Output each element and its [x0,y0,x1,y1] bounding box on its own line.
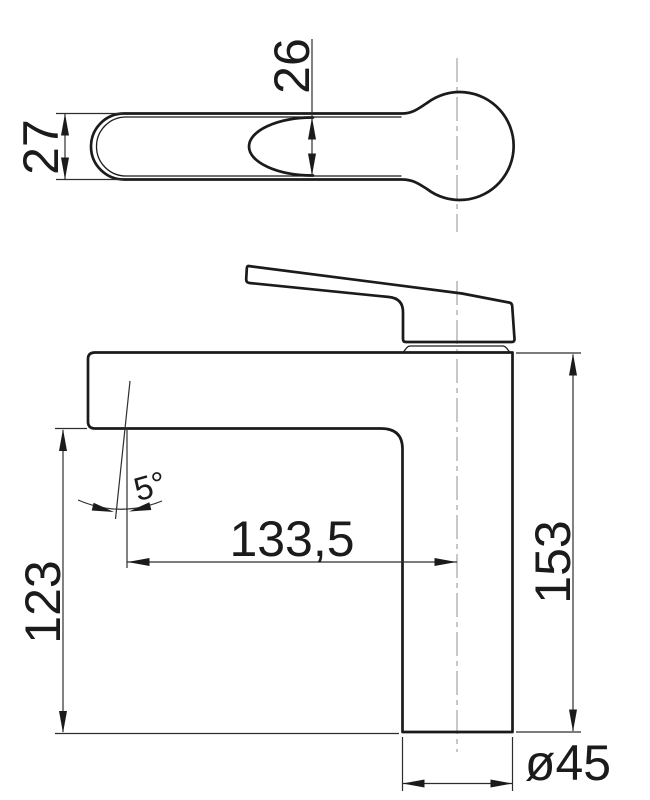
dim-153-arrow-down [569,710,577,732]
dim-133-label: 133,5 [229,511,354,567]
handle-top-view-crease-arc [249,118,313,176]
technical-drawing-page: 27 26 5° 133,5 [0,0,650,800]
dim-26-label: 26 [264,38,320,94]
dim-123-extension-lines [55,429,399,734]
dim-26-arrow-down [308,154,316,176]
dim-spout-height: 123 [15,429,399,734]
dim-123-arrow-down [59,711,67,733]
dim-45-arrow-left [403,780,425,788]
aerator-tilt-line [116,381,131,519]
dim-5deg-label: 5° [130,464,171,508]
dim-spout-reach: 133,5 [127,428,457,568]
lever-handle-outline [246,266,514,342]
dim-handle-width: 27 [13,114,123,180]
dim-123-label: 123 [15,560,71,643]
dim-handle-inner-width: 26 [264,38,320,175]
dim-45-label: ø45 [525,735,611,791]
side-view [88,266,515,752]
dim-133-arrow-left [128,558,150,566]
dim-27-label: 27 [13,119,69,175]
dim-26-arrow-up [308,118,316,140]
dim-153-arrow-up [569,354,577,376]
dim-45-arrow-right [491,780,513,788]
faucet-technical-drawing: 27 26 5° 133,5 [0,0,650,800]
dim-spray-angle: 5° [78,464,170,516]
dim-base-diameter: ø45 [403,735,612,791]
dim-123-arrow-up [59,429,67,451]
dim-total-height: 153 [516,353,581,732]
dim-133-arrow-right [435,558,457,566]
dim-153-label: 153 [525,520,581,603]
handle-top-view-outline [91,92,514,200]
